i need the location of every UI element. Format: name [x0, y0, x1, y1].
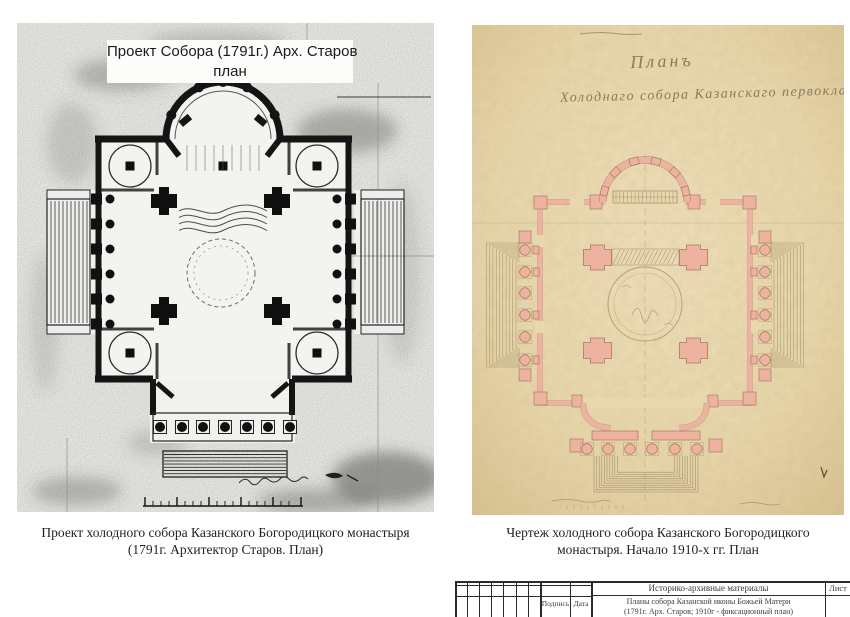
- tb-vline: [503, 581, 504, 617]
- left-plan-drawing: [17, 23, 434, 512]
- left-figure-label-line2: план: [107, 62, 353, 82]
- left-figure-label: Проект Собора (1791г.) Арх. Старов план: [107, 40, 353, 83]
- tb-vline: [479, 581, 480, 617]
- title-block-description-line2: (1791г. Арх. Старов; 1910г - фиксационны…: [592, 607, 825, 617]
- title-block-sheet-label: Лист: [826, 583, 850, 593]
- title-block-header: Историко-архивные материалы: [592, 583, 825, 593]
- title-block-date-label: Дата: [571, 599, 591, 608]
- figure-starov-plan-1791: Проект Собора (1791г.) Арх. Старов план: [17, 23, 434, 512]
- left-caption-line1: Проект холодного собора Казанского Богор…: [17, 524, 434, 541]
- handwritten-title: Планъ: [602, 49, 723, 74]
- tb-vline: [467, 581, 468, 617]
- right-figure-caption: Чертеж холодного собора Казанского Богор…: [472, 524, 844, 558]
- tb-vline: [528, 581, 529, 617]
- right-caption-line2: монастыря. Начало 1910-х гг. План: [472, 541, 844, 558]
- tb-hline: [455, 596, 591, 597]
- left-caption-line2: (1791г. Архитектор Старов. План): [17, 541, 434, 558]
- figure-fixation-plan-1910s: Планъ Холоднаго собора Казанскаго первок…: [472, 25, 844, 515]
- title-block: Историко-архивные материалы Планы собора…: [455, 581, 850, 617]
- tb-vline: [491, 581, 492, 617]
- left-figure-caption: Проект холодного собора Казанского Богор…: [17, 524, 434, 558]
- title-block-description: Планы собора Казанской иконы Божьей Мате…: [592, 597, 825, 617]
- title-block-description-line1: Планы собора Казанской иконы Божьей Мате…: [592, 597, 825, 607]
- tb-vline: [455, 581, 457, 617]
- left-figure-label-line1: Проект Собора (1791г.) Арх. Старов: [107, 42, 353, 62]
- tb-hline: [591, 595, 850, 596]
- document-page: Проект Собора (1791г.) Арх. Старов план: [0, 0, 850, 617]
- right-caption-line1: Чертеж холодного собора Казанского Богор…: [472, 524, 844, 541]
- tb-vline: [516, 581, 517, 617]
- title-block-signature-label: Подпись: [541, 599, 570, 608]
- tb-hline: [455, 585, 591, 586]
